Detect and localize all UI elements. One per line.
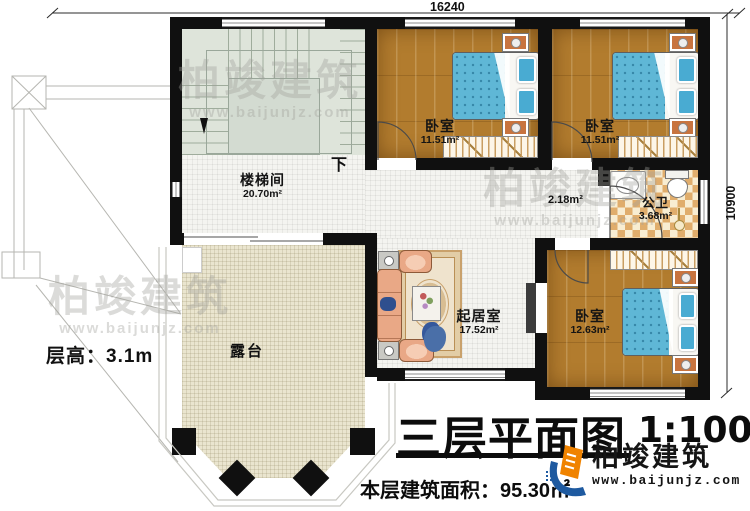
- window: [590, 387, 685, 400]
- bathroom-sink: [610, 171, 646, 199]
- door-leaf: [526, 283, 536, 333]
- room-name: 起居室: [448, 308, 510, 324]
- room-area: 3.68m²: [628, 210, 683, 222]
- bed-pillow: [517, 57, 536, 83]
- bed-pillow: [677, 89, 696, 115]
- nightstand: [673, 356, 698, 373]
- room-label-terrace: 露台: [230, 340, 264, 361]
- room-label-bedroom3: 卧室 12.63m²: [545, 308, 635, 336]
- brand-logo-icon: [545, 443, 587, 503]
- sofa-cushion-item: [380, 297, 396, 311]
- room-name: 楼梯间: [215, 172, 310, 188]
- wall-segment: [547, 238, 555, 250]
- wall-segment: [535, 238, 547, 283]
- window: [580, 17, 685, 29]
- wall-segment: [365, 29, 377, 170]
- nightstand: [670, 34, 695, 51]
- toilet-bowl: [667, 178, 688, 198]
- bed-pillow: [517, 89, 536, 115]
- nightstand: [670, 119, 695, 136]
- wall-segment: [515, 17, 552, 29]
- room-name: 公卫: [628, 196, 683, 210]
- armchair: [399, 250, 432, 273]
- sliding-door: [184, 237, 323, 241]
- wall-segment: [590, 238, 698, 250]
- side-table: [378, 251, 399, 270]
- stair-outline: [206, 50, 352, 154]
- window: [222, 17, 325, 29]
- nightstand: [503, 119, 528, 136]
- nightstand: [503, 34, 528, 51]
- wall-segment: [377, 17, 405, 29]
- room-label-bathroom: 公卫 3.68m²: [628, 196, 683, 222]
- wall-segment: [598, 170, 610, 186]
- room-name: 卧室: [395, 118, 485, 134]
- wall-segment: [170, 17, 222, 29]
- wall-segment: [535, 333, 547, 387]
- room-area: 17.52m²: [448, 324, 510, 336]
- terrace-step: [182, 247, 202, 273]
- floor-height-label: 层高：3.1m: [46, 341, 153, 368]
- wall-segment: [538, 158, 552, 170]
- toilet: [664, 170, 692, 198]
- wall-segment: [323, 233, 377, 245]
- terrace-column: [172, 428, 196, 455]
- stair-down-label: 下: [331, 151, 347, 175]
- hallway-area-label: 2.18m²: [548, 194, 583, 206]
- bed: [452, 52, 540, 120]
- wall-segment: [698, 29, 710, 180]
- wall-segment: [170, 29, 182, 182]
- side-table: [378, 341, 399, 360]
- room-label-living-room: 起居室 17.52m²: [448, 308, 510, 336]
- wall-segment: [170, 233, 184, 245]
- wall-segment: [535, 387, 590, 400]
- wall-segment: [416, 158, 538, 170]
- brand-name: 柏竣建筑: [592, 443, 741, 473]
- room-label-stairwell: 楼梯间 20.70m²: [215, 172, 310, 200]
- terrace-floor: [182, 245, 365, 478]
- room-name: 卧室: [555, 118, 645, 134]
- floor-area-label: 本层建筑面积：95.30㎡: [360, 474, 570, 503]
- brand-website: www.baijunjz.com: [592, 473, 741, 488]
- bed-pillow: [677, 57, 696, 83]
- wall-segment: [685, 17, 710, 29]
- stair-flights: [182, 29, 365, 155]
- room-label-bedroom1: 卧室 11.51m²: [395, 118, 485, 146]
- room-area: 11.51m²: [555, 134, 645, 146]
- room-area: 11.51m²: [395, 134, 485, 146]
- bed-pillow: [679, 325, 696, 351]
- wall-segment: [592, 158, 698, 170]
- wall-segment: [698, 224, 710, 400]
- wall-segment: [377, 368, 405, 381]
- brand-logo: 柏竣建筑 www.baijunjz.com: [545, 443, 741, 503]
- window: [170, 182, 182, 197]
- roof-lines: [2, 76, 181, 462]
- bed: [612, 52, 700, 120]
- stair-direction-arrow: [200, 118, 208, 134]
- room-label-bedroom2: 卧室 11.51m²: [555, 118, 645, 146]
- wall-segment: [552, 17, 580, 29]
- nightstand: [673, 269, 698, 286]
- wall-segment: [325, 17, 377, 29]
- room-name: 卧室: [545, 308, 635, 324]
- window: [698, 180, 710, 224]
- wardrobe: [610, 250, 698, 270]
- room-area: 20.70m²: [215, 188, 310, 200]
- bed-pillow: [679, 293, 696, 319]
- window: [405, 17, 515, 29]
- terrace-column: [350, 428, 375, 455]
- wall-segment: [365, 245, 377, 377]
- wall-segment: [685, 387, 710, 400]
- floor-plan-canvas: 柏竣建筑 www.baijunjz.com 柏竣建筑 www.baijunjz.…: [0, 0, 750, 511]
- brand-logo-text: 柏竣建筑 www.baijunjz.com: [592, 443, 741, 488]
- wall-segment: [538, 29, 552, 158]
- dimension-right-label: 10900: [724, 173, 738, 233]
- window: [405, 368, 505, 381]
- dimension-top-label: 16240: [430, 0, 465, 14]
- room-area: 12.63m²: [545, 324, 635, 336]
- coffee-table: [412, 286, 441, 321]
